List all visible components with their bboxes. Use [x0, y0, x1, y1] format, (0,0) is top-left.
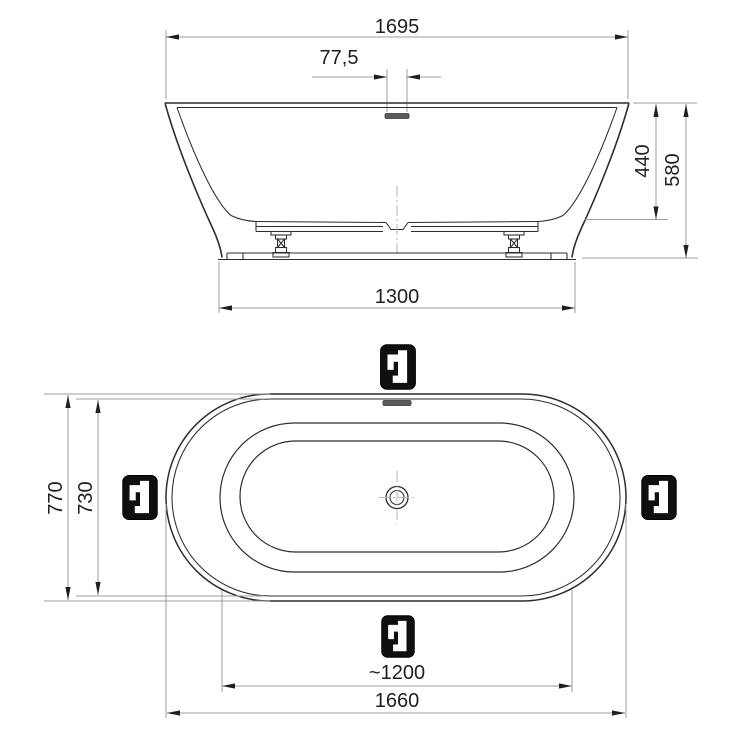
technical-drawing-canvas: 1695 77,5 [0, 0, 740, 740]
dim-label-overall-width: 770 [45, 481, 67, 514]
arrowhead-left [166, 34, 179, 39]
arrowhead-down [683, 245, 688, 258]
right-wall-inner [538, 108, 617, 222]
bathtub-plan-outline [166, 394, 626, 601]
foot-lower [276, 248, 287, 253]
arrowhead-right [559, 683, 572, 688]
dim-label-base-length: 1300 [375, 286, 420, 308]
faucet-position-marker-top [381, 345, 416, 389]
rim-outer-contour-inner-line [172, 399, 620, 596]
arrowhead-left [219, 305, 232, 310]
arrowhead-up [95, 400, 100, 413]
dim-overall-length: 1695 [166, 16, 628, 99]
standing-faucet-icon [381, 345, 416, 389]
dim-label-overflow-offset: 77,5 [320, 47, 359, 69]
arrowhead-left [167, 710, 180, 715]
arrowhead-right [615, 34, 628, 39]
rim-outer-contour [166, 394, 626, 601]
arrowhead-down [653, 207, 658, 220]
foot-thread-cross [511, 239, 518, 248]
arrowhead-down [95, 582, 100, 595]
left-wall-outer [165, 103, 222, 258]
foot-neck [509, 235, 520, 239]
foot-neck [276, 235, 287, 239]
dim-label-basin-length: ~1200 [369, 662, 425, 684]
faucet-position-marker-left [123, 476, 157, 520]
foot-thread-cross [278, 239, 285, 248]
dim-label-plan-overall-length: 1660 [375, 690, 420, 712]
arrowhead-right [562, 305, 575, 310]
arrowhead-up [65, 395, 70, 408]
overflow-slot [383, 401, 411, 406]
standing-faucet-icon [642, 476, 676, 520]
arrowhead-up [653, 104, 658, 117]
standing-faucet-icon [123, 476, 157, 520]
right-wall-outer [572, 103, 629, 258]
dim-base-length: 1300 [219, 262, 575, 313]
faucet-position-marker-right [642, 476, 676, 520]
dim-heights: 440 580 [582, 103, 698, 258]
plan-view: 770 730 ~1200 1660 [44, 345, 676, 718]
shell-bottom-edge [256, 222, 538, 223]
standing-faucet-icon [382, 616, 415, 658]
foot-lower [509, 248, 520, 253]
faucet-position-marker-bottom [382, 616, 415, 658]
left-wall-inner [177, 108, 256, 222]
dim-label-inner-width: 730 [75, 481, 97, 514]
arrowhead-down [65, 587, 70, 600]
bathtub-side-outline [165, 103, 629, 260]
dim-label-overall-height: 580 [662, 153, 684, 186]
arrowhead-left [374, 74, 387, 79]
overflow-slot [385, 114, 409, 119]
arrowhead-up [683, 104, 688, 117]
dim-inner-width: 730 [75, 399, 264, 596]
side-elevation-view: 1695 77,5 [165, 16, 698, 313]
arrowhead-right [612, 710, 625, 715]
bathtub-technical-drawing: 1695 77,5 [0, 0, 740, 740]
dim-label-overall-length: 1695 [375, 16, 420, 38]
arrowhead-left [222, 683, 235, 688]
arrowhead-right [407, 74, 420, 79]
dim-label-shell-depth: 440 [632, 144, 654, 177]
